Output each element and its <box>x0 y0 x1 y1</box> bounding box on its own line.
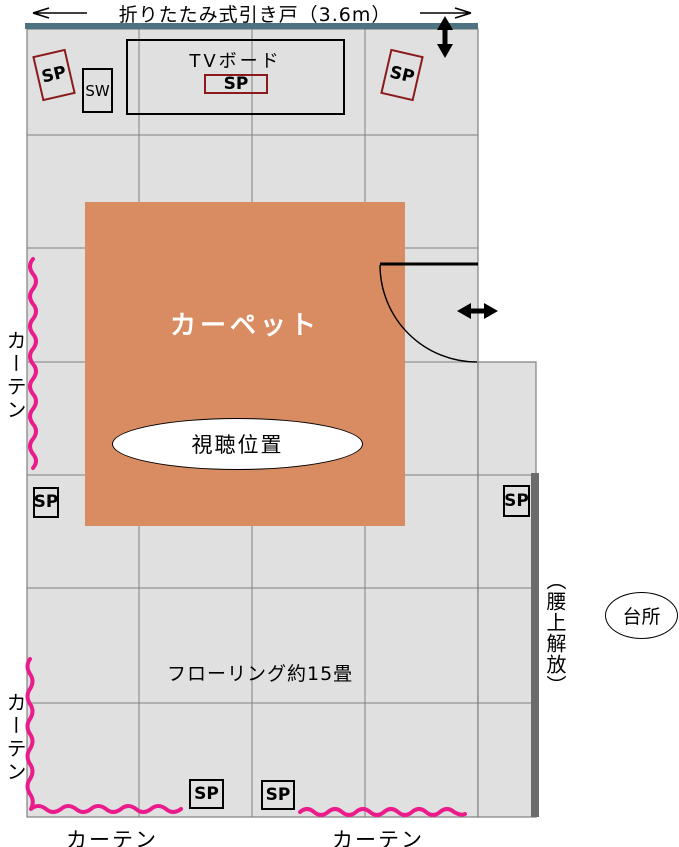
viewing-position-label: 視聴位置 <box>192 429 284 459</box>
curtain-label-bottom-right: カーテン <box>332 824 424 847</box>
front-left-speaker-label: SP <box>40 64 68 86</box>
subwoofer-label: SW <box>85 82 109 100</box>
floor-plan: カーペット 視聴位置 TVボード SP SP SP SW SP SP SP SP <box>0 0 679 847</box>
tv-board-label: TVボード <box>128 47 343 73</box>
front-right-speaker: SP <box>380 49 423 101</box>
open-wall-bar <box>531 473 539 817</box>
rear-left-speaker-label: SP <box>194 786 219 803</box>
front-left-speaker: SP <box>32 49 75 101</box>
door-slide-vertical-arrow <box>437 16 453 58</box>
kitchen-ellipse: 台所 <box>605 592 678 639</box>
center-speaker: SP <box>204 74 268 94</box>
rear-right-speaker: SP <box>261 780 295 810</box>
waist-open-label: （腰上解放） <box>541 570 570 696</box>
viewing-position-ellipse: 視聴位置 <box>112 418 363 470</box>
flooring-label: フローリング約15畳 <box>167 659 353 686</box>
side-left-speaker-label: SP <box>34 494 59 511</box>
side-right-speaker-label: SP <box>504 493 529 510</box>
rear-left-speaker: SP <box>189 779 224 809</box>
side-left-speaker: SP <box>33 487 59 518</box>
carpet-label: カーペット <box>170 305 320 342</box>
hinged-door-swing-arrow <box>457 303 498 319</box>
kitchen-label: 台所 <box>622 602 660 629</box>
subwoofer: SW <box>82 68 113 113</box>
curtain-label-left-lower: カーテン <box>1 692 30 784</box>
sliding-door-title: 折りたたみ式引き戸（3.6m） <box>110 0 400 27</box>
carpet-area: カーペット <box>85 202 405 526</box>
curtain-label-left-upper: カーテン <box>1 330 30 422</box>
center-speaker-label: SP <box>224 76 249 93</box>
rear-right-speaker-label: SP <box>266 787 291 804</box>
curtain-label-bottom-left: カーテン <box>66 824 158 847</box>
curtain-wave-bottom-right <box>300 809 465 815</box>
curtain-wave-left-upper <box>30 259 36 468</box>
door-slide-right-arrow <box>420 8 471 18</box>
side-right-speaker: SP <box>503 485 530 517</box>
curtain-wave-left-lower <box>28 659 182 812</box>
room-extension <box>478 362 536 817</box>
tv-board: TVボード SP <box>126 39 345 115</box>
front-right-speaker-label: SP <box>388 64 416 86</box>
door-slide-left-arrow <box>33 8 87 18</box>
